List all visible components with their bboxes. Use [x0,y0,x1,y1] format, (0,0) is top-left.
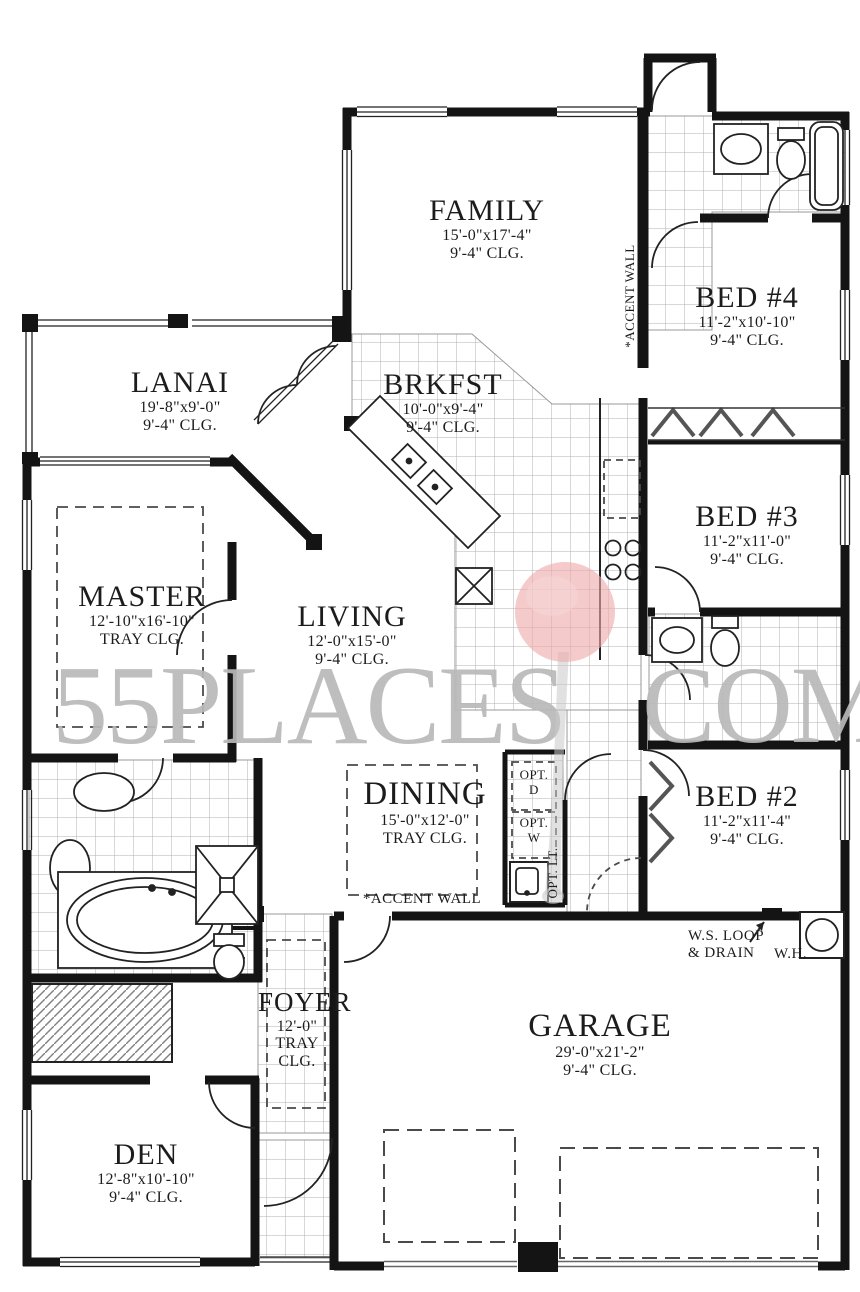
room-dims: 15'-0"x17'-4" [387,227,587,245]
accent-wall-note-family: *ACCENT WALL [623,221,639,371]
room-ceiling: 9'-4" CLG. [387,245,587,263]
room-label-brkfst: BRKFST 10'-0"x9'-4" 9'-4" CLG. [343,368,543,436]
room-label-family: FAMILY 15'-0"x17'-4" 9'-4" CLG. [387,194,587,262]
room-dims: 19'-8"x9'-0" [80,399,280,417]
room-name: FAMILY [387,194,587,227]
room-label-foyer: FOYER 12'-0" TRAY CLG. [258,988,336,1070]
room-ceiling: 9'-4" CLG. [252,651,452,669]
room-ceiling: 9'-4" CLG. [46,1189,246,1207]
room-dims: 12'-8"x10'-10" [46,1171,246,1189]
opt-washer-line1: OPT. [511,816,557,831]
room-name: DEN [46,1138,246,1171]
opt-dryer-line2: D [511,783,557,798]
opt-laundry-tub-note: OPT. LT. [546,842,560,904]
room-dims: 15'-0"x12'-0" [325,812,525,830]
room-dims: 10'-0"x9'-4" [343,401,543,419]
room-dims: 12'-10"x16'-10" [42,613,242,631]
room-label-master: MASTER 12'-10"x16'-10" TRAY CLG. [42,580,242,648]
room-dims: 11'-2"x11'-0" [647,533,847,551]
room-label-living: LIVING 12'-0"x15'-0" 9'-4" CLG. [252,600,452,668]
room-dims: 11'-2"x10'-10" [647,314,847,332]
room-ceiling: TRAY CLG. [258,1035,336,1070]
room-name: GARAGE [470,1008,730,1044]
room-label-bed2: BED #2 11'-2"x11'-4" 9'-4" CLG. [647,780,847,848]
room-label-garage: GARAGE 29'-0"x21'-2" 9'-4" CLG. [470,1008,730,1079]
room-ceiling: 9'-4" CLG. [80,417,280,435]
room-name: DINING [325,776,525,812]
room-name: BRKFST [343,368,543,401]
room-dims: 12'-0" [258,1018,336,1036]
room-ceiling: TRAY CLG. [42,631,242,649]
room-name: BED #4 [647,281,847,314]
room-label-lanai: LANAI 19'-8"x9'-0" 9'-4" CLG. [80,366,280,434]
room-ceiling: 9'-4" CLG. [647,332,847,350]
accent-wall-note-dining: *ACCENT WALL [347,891,497,908]
floorplan: 55PLACES COM FAMILY 15'-0"x17'-4" 9'-4" … [0,0,860,1292]
room-dims: 12'-0"x15'-0" [252,633,452,651]
watermark-text-right: COM [642,642,860,769]
room-label-dining: DINING 15'-0"x12'-0" TRAY CLG. [325,776,525,847]
room-name: MASTER [42,580,242,613]
room-label-den: DEN 12'-8"x10'-10" 9'-4" CLG. [46,1138,246,1206]
ws-loop-line1: W.S. LOOP [688,928,800,945]
room-name: FOYER [258,988,336,1018]
room-ceiling: 9'-4" CLG. [343,419,543,437]
room-label-bed4: BED #4 11'-2"x10'-10" 9'-4" CLG. [647,281,847,349]
room-ceiling: TRAY CLG. [325,830,525,848]
room-name: BED #3 [647,500,847,533]
opt-dryer-line1: OPT. [511,768,557,783]
opt-dryer-note: OPT. D [511,768,557,798]
room-ceiling: 9'-4" CLG. [647,831,847,849]
room-ceiling: 9'-4" CLG. [647,551,847,569]
room-label-bed3: BED #3 11'-2"x11'-0" 9'-4" CLG. [647,500,847,568]
room-name: LANAI [80,366,280,399]
room-dims: 29'-0"x21'-2" [470,1044,730,1062]
room-name: LIVING [252,600,452,633]
garage-thresholds [384,1262,818,1267]
room-ceiling: 9'-4" CLG. [470,1062,730,1080]
room-name: BED #2 [647,780,847,813]
room-dims: 11'-2"x11'-4" [647,813,847,831]
water-heater-label: W.H. [774,946,828,963]
